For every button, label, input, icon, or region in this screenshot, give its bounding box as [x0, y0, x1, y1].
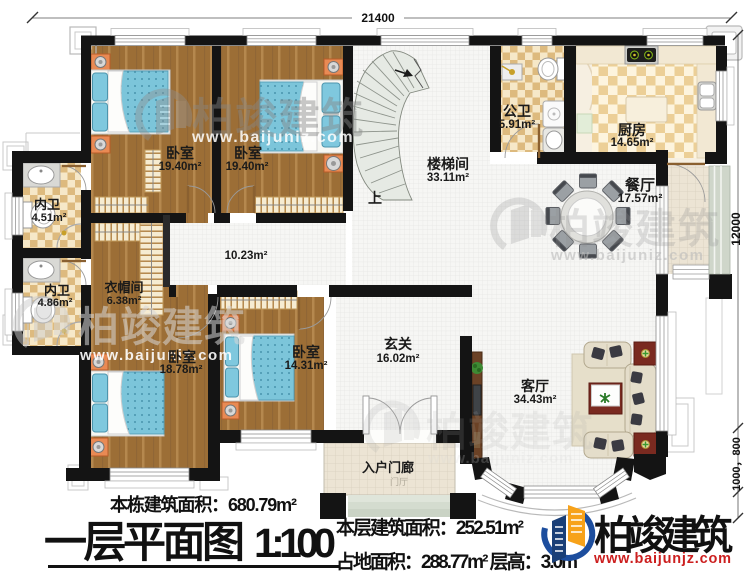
- svg-text:www.baijunjz.com: www.baijunjz.com: [593, 551, 731, 567]
- svg-text:客厅: 客厅: [520, 378, 549, 394]
- svg-text:柏竣建筑: 柏竣建筑: [549, 206, 721, 252]
- svg-text:19.40m²: 19.40m²: [159, 161, 202, 173]
- svg-text:17.57m²: 17.57m²: [618, 191, 663, 205]
- svg-text:www.baijuniz.com: www.baijuniz.com: [550, 247, 704, 264]
- svg-text:6.38m²: 6.38m²: [107, 295, 142, 307]
- svg-text:公卫: 公卫: [503, 103, 531, 119]
- svg-text:21400: 21400: [361, 11, 395, 25]
- svg-text:入户门廊: 入户门廊: [362, 460, 414, 475]
- svg-text:本栋建筑面积：680.79m²: 本栋建筑面积：680.79m²: [110, 494, 297, 515]
- svg-text:19.40m²: 19.40m²: [226, 161, 269, 173]
- svg-text:卧室: 卧室: [168, 349, 196, 365]
- svg-text:门厅: 门厅: [390, 476, 408, 487]
- svg-text:www.baijuniz.com: www.baijuniz.com: [427, 450, 573, 467]
- svg-text:10.23m²: 10.23m²: [225, 250, 268, 262]
- svg-text:4.86m²: 4.86m²: [38, 297, 73, 309]
- svg-text:1000，800: 1000，800: [731, 437, 743, 491]
- svg-text:14.65m²: 14.65m²: [611, 137, 654, 149]
- svg-text:16.02m²: 16.02m²: [377, 353, 420, 365]
- svg-text:18.78m²: 18.78m²: [160, 364, 203, 376]
- svg-text:1:100: 1:100: [254, 520, 336, 566]
- svg-text:厨房: 厨房: [618, 122, 646, 138]
- svg-text:14.31m²: 14.31m²: [285, 360, 328, 372]
- svg-text:www.baijuniz.com: www.baijuniz.com: [191, 129, 354, 146]
- svg-text:楼梯间: 楼梯间: [427, 156, 469, 172]
- svg-text:占地面积：288.77m² 层高：3.0m: 占地面积：288.77m² 层高：3.0m: [336, 550, 578, 573]
- svg-text:衣帽间: 衣帽间: [104, 280, 143, 295]
- svg-text:内卫: 内卫: [44, 283, 70, 298]
- svg-text:5.91m²: 5.91m²: [499, 119, 536, 131]
- svg-text:12000: 12000: [729, 212, 743, 246]
- svg-text:www.baijuniz.com: www.baijuniz.com: [79, 347, 233, 364]
- svg-text:柏竣建筑: 柏竣建筑: [78, 304, 246, 350]
- svg-text:卧室: 卧室: [166, 145, 194, 161]
- svg-text:卧室: 卧室: [292, 344, 320, 360]
- svg-text:33.11m²: 33.11m²: [427, 172, 469, 184]
- svg-text:柏竣建筑: 柏竣建筑: [426, 409, 594, 455]
- svg-text:本层建筑面积：252.51m²: 本层建筑面积：252.51m²: [336, 516, 524, 539]
- svg-text:卧室: 卧室: [234, 145, 262, 161]
- svg-text:玄关: 玄关: [384, 336, 412, 352]
- svg-text:4.51m²: 4.51m²: [32, 212, 67, 224]
- svg-text:34.43m²: 34.43m²: [514, 394, 557, 406]
- svg-text:内卫: 内卫: [34, 197, 60, 212]
- svg-text:一层平面图: 一层平面图: [44, 519, 245, 567]
- svg-text:上: 上: [368, 190, 382, 206]
